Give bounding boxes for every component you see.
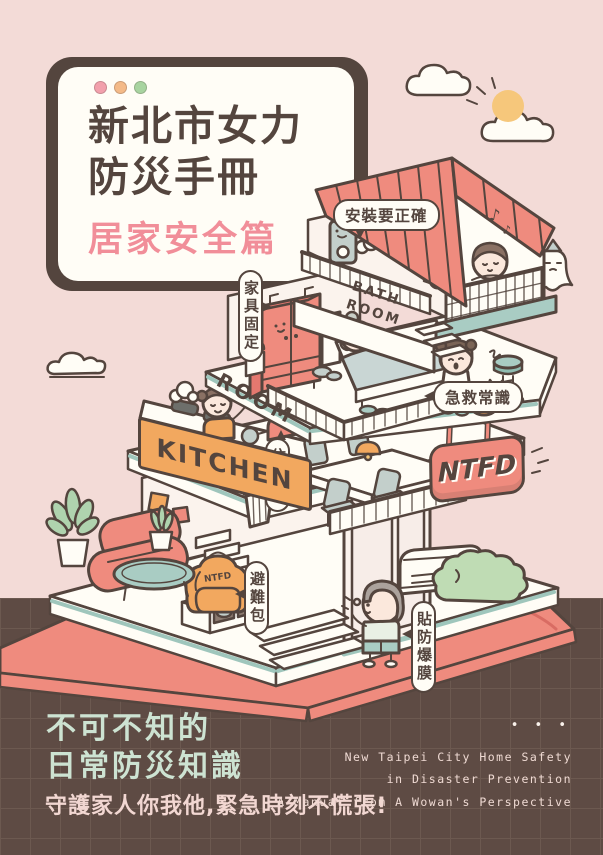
bubble-tail (402, 629, 412, 639)
footer-english-title: New Taipei City Home Safety in Disaster … (277, 746, 572, 813)
bush-icon (433, 551, 527, 602)
potted-plant (44, 488, 102, 566)
callout-go-bag: 避難包 (244, 561, 269, 635)
callout-first-aid: 急救常識 (433, 381, 523, 413)
footer-english-line2: in Disaster Prevention (277, 768, 572, 790)
callout-install-label: 安裝要正確 (345, 207, 428, 225)
footer-headline-line2: 日常防災知識 (46, 748, 244, 786)
callout-furniture-label: 家具固定 (242, 280, 260, 352)
footer-headline: 不可不知的 日常防災知識 (46, 710, 244, 785)
bubble-tail (355, 229, 365, 239)
footer-headline-line1: 不可不知的 (46, 710, 244, 748)
callout-first-aid-label: 急救常識 (445, 389, 511, 407)
footer-english-line3: A Manual from A Wowan's Perspective (277, 791, 572, 813)
bubble-tail (424, 391, 434, 401)
bathtub-woman-character (472, 243, 508, 280)
callout-install: 安裝要正確 (333, 199, 440, 231)
footer-english-line1: New Taipei City Home Safety (277, 746, 572, 768)
sun-icon (467, 78, 524, 122)
callout-furniture: 家具固定 (238, 270, 263, 362)
bubble-tail (235, 589, 245, 599)
ellipsis-dots-icon: • • • (511, 718, 572, 733)
bubble-tail (262, 302, 272, 312)
bubble-tail (276, 430, 286, 440)
callout-film: 貼防爆膜 (411, 601, 436, 693)
callout-film-label: 貼防爆膜 (415, 611, 433, 683)
callout-go-bag-label: 避難包 (248, 571, 266, 625)
ntfd-sign: NTFD (429, 434, 525, 504)
poster: 新北市女力 防災手冊 居家安全篇 (0, 0, 603, 855)
